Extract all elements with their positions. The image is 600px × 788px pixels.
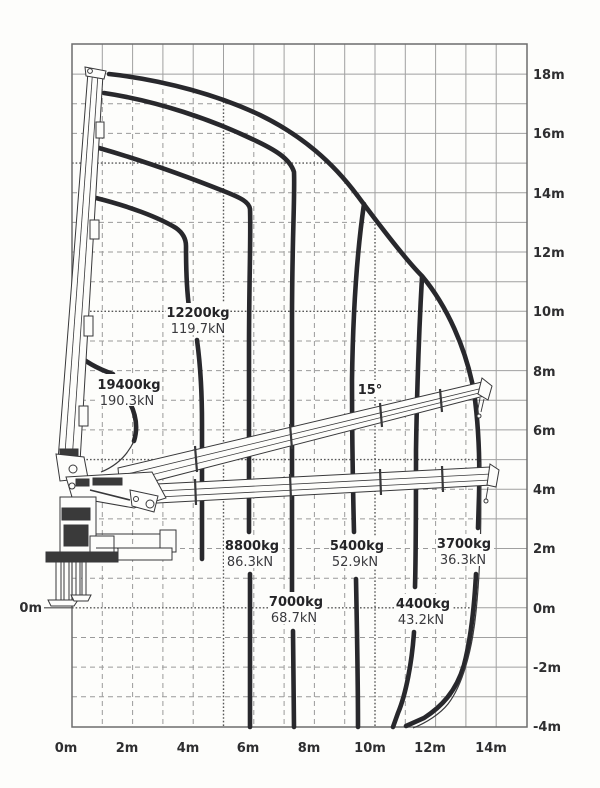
y-tick-4m: 4m bbox=[533, 483, 556, 498]
label-5400-kn: 52.9kN bbox=[332, 555, 378, 570]
label-19400-kg: 19400kg bbox=[97, 378, 160, 393]
label-4400-kn: 43.2kN bbox=[398, 613, 444, 628]
label-7000-kn: 68.7kN bbox=[271, 611, 317, 626]
boom-angle-label: 15° bbox=[358, 383, 383, 398]
label-4400: 4400kg 43.2kN bbox=[394, 594, 452, 628]
label-19400: 19400kg 190.3kN bbox=[97, 374, 162, 409]
x-tick-0m: 0m bbox=[55, 741, 78, 756]
ground-level-label: 0m bbox=[19, 601, 42, 616]
y-tick-0m: 0m bbox=[533, 602, 556, 617]
x-tick-4m: 4m bbox=[177, 741, 200, 756]
label-19400-kn: 190.3kN bbox=[100, 394, 154, 409]
label-12200: 12200kg 119.7kN bbox=[166, 303, 230, 337]
label-12200-kg: 12200kg bbox=[166, 306, 229, 321]
label-8800-kg: 8800kg bbox=[225, 539, 279, 554]
y-tick-neg4m: -4m bbox=[533, 720, 561, 735]
label-3700-kg: 3700kg bbox=[437, 537, 491, 552]
x-tick-2m: 2m bbox=[116, 741, 139, 756]
x-tick-14m: 14m bbox=[475, 741, 507, 756]
load-chart-page: 19400kg 190.3kN 12200kg 119.7kN 8800kg 8… bbox=[0, 0, 600, 788]
curve-5400-lower bbox=[356, 579, 358, 727]
y-tick-neg2m: -2m bbox=[533, 661, 561, 676]
y-tick-12m: 12m bbox=[533, 246, 565, 261]
label-12200-kn: 119.7kN bbox=[171, 322, 225, 337]
y-tick-18m: 18m bbox=[533, 68, 565, 83]
label-7000-kg: 7000kg bbox=[269, 595, 323, 610]
x-tick-8m: 8m bbox=[298, 741, 321, 756]
label-boom-angle: 15° bbox=[356, 380, 386, 398]
y-tick-8m: 8m bbox=[533, 365, 556, 380]
y-tick-16m: 16m bbox=[533, 127, 565, 142]
label-5400: 5400kg 52.9kN bbox=[329, 536, 387, 570]
label-7000: 7000kg 68.7kN bbox=[268, 592, 326, 626]
label-8800-kn: 86.3kN bbox=[227, 555, 273, 570]
x-tick-6m: 6m bbox=[237, 741, 260, 756]
y-axis-labels: 18m 16m 14m 12m 10m 8m 6m 4m 2m 0m -2m -… bbox=[533, 68, 565, 735]
crane-outriggers bbox=[48, 562, 91, 606]
x-tick-10m: 10m bbox=[354, 741, 386, 756]
y-tick-14m: 14m bbox=[533, 187, 565, 202]
x-axis-labels: 0m 2m 4m 6m 8m 10m 12m 14m bbox=[55, 741, 507, 756]
label-4400-kg: 4400kg bbox=[396, 597, 450, 612]
load-chart-canvas: 19400kg 190.3kN 12200kg 119.7kN 8800kg 8… bbox=[0, 0, 600, 788]
y-tick-6m: 6m bbox=[533, 424, 556, 439]
x-tick-12m: 12m bbox=[414, 741, 446, 756]
y-tick-2m: 2m bbox=[533, 542, 556, 557]
label-8800: 8800kg 86.3kN bbox=[224, 536, 282, 570]
y-tick-10m: 10m bbox=[533, 305, 565, 320]
curve-7000-lower bbox=[293, 631, 294, 727]
label-3700-kn: 36.3kN bbox=[440, 553, 486, 568]
label-5400-kg: 5400kg bbox=[330, 539, 384, 554]
label-3700: 3700kg 36.3kN bbox=[436, 534, 494, 568]
